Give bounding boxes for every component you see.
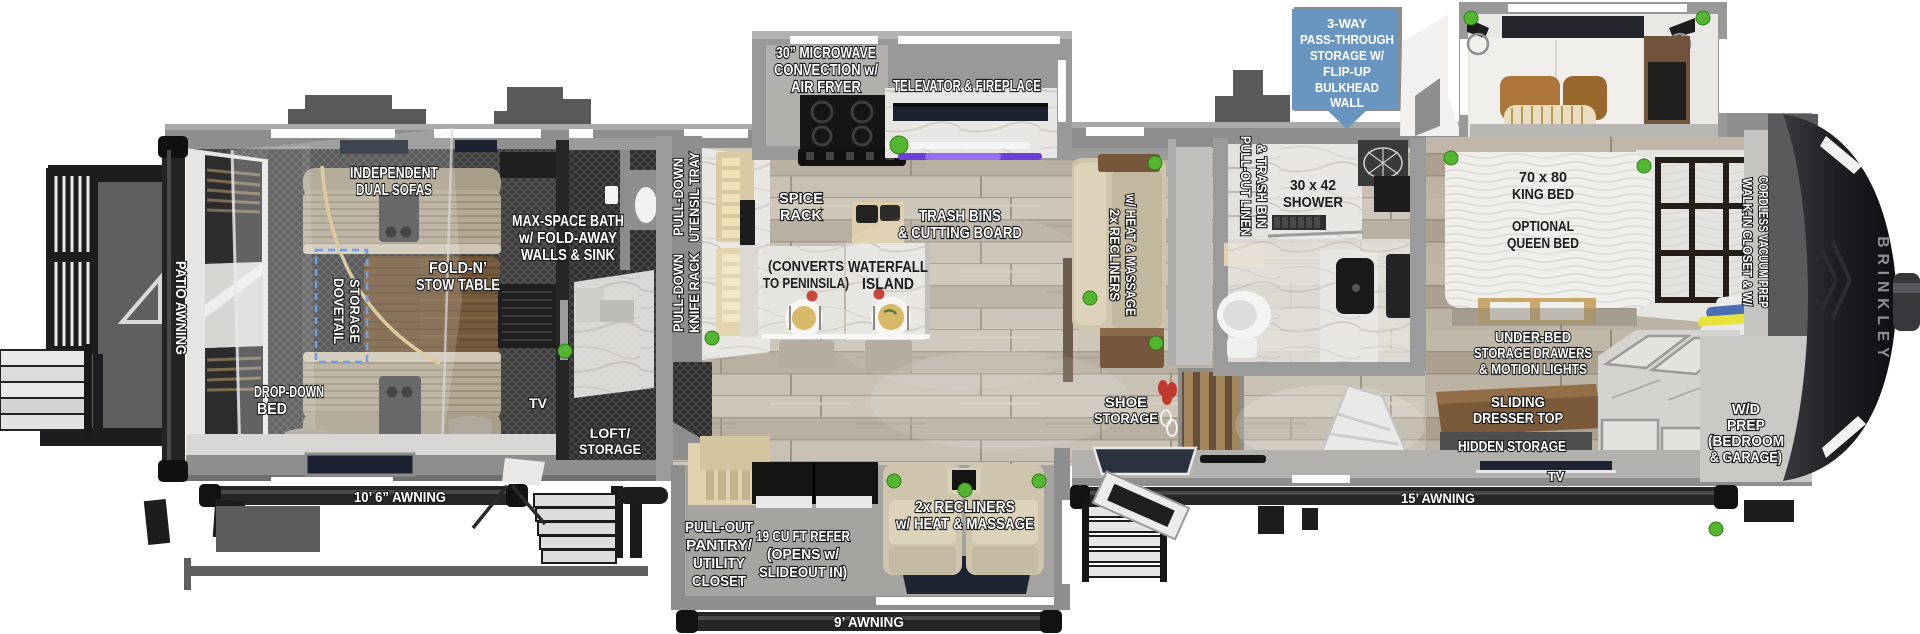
- svg-text:& GARAGE): & GARAGE): [1710, 450, 1782, 466]
- svg-text:STORAGE W/: STORAGE W/: [1310, 48, 1384, 63]
- svg-text:w/ HEAT & MASSAGE: w/ HEAT & MASSAGE: [895, 516, 1034, 533]
- svg-text:DROP-DOWN: DROP-DOWN: [254, 384, 324, 401]
- svg-text:PULL-DOWN: PULL-DOWN: [670, 158, 686, 236]
- svg-text:STORAGE: STORAGE: [579, 441, 641, 457]
- svg-text:QUEEN BED: QUEEN BED: [1507, 236, 1579, 252]
- svg-text:FOLD-N’: FOLD-N’: [429, 260, 487, 277]
- svg-text:SLIDING: SLIDING: [1491, 395, 1545, 411]
- svg-text:70 x 80: 70 x 80: [1519, 170, 1567, 186]
- svg-text:STORAGE: STORAGE: [1094, 410, 1158, 426]
- svg-text:HIDDEN STORAGE: HIDDEN STORAGE: [1458, 439, 1566, 455]
- svg-text:(CONVERTS: (CONVERTS: [768, 259, 844, 275]
- svg-text:INDEPENDENT: INDEPENDENT: [350, 165, 438, 182]
- svg-text:STOW TABLE: STOW TABLE: [416, 277, 500, 294]
- svg-text:9’ AWNING: 9’ AWNING: [834, 615, 904, 631]
- svg-text:PULL-OUT: PULL-OUT: [685, 519, 753, 536]
- svg-text:15’ AWNING: 15’ AWNING: [1401, 490, 1475, 506]
- svg-text:w/ FOLD-AWAY: w/ FOLD-AWAY: [518, 230, 617, 247]
- svg-text:WATERFALL: WATERFALL: [848, 259, 928, 276]
- svg-text:& TRASH BIN: & TRASH BIN: [1254, 144, 1269, 228]
- svg-text:CLOSET: CLOSET: [692, 573, 746, 590]
- svg-text:SHOWER: SHOWER: [1283, 195, 1343, 211]
- svg-text:BED: BED: [257, 401, 287, 418]
- svg-text:LOFT/: LOFT/: [590, 425, 631, 441]
- svg-text:SPICE: SPICE: [779, 190, 823, 207]
- svg-text:2x RECLINERS: 2x RECLINERS: [915, 499, 1015, 516]
- svg-text:(OPENS w/: (OPENS w/: [767, 546, 840, 563]
- svg-text:W/D: W/D: [1732, 402, 1760, 418]
- svg-text:& CUTTING BOARD: & CUTTING BOARD: [898, 225, 1022, 242]
- svg-text:w/ HEAT & MASSAGE: w/ HEAT & MASSAGE: [1123, 193, 1138, 316]
- svg-text:UTILITY: UTILITY: [693, 555, 745, 572]
- svg-text:STORAGE DRAWERS: STORAGE DRAWERS: [1474, 346, 1592, 362]
- svg-text:UTENSIL TRAY: UTENSIL TRAY: [686, 151, 702, 242]
- svg-text:RACK: RACK: [780, 207, 822, 224]
- svg-text:FLIP-UP: FLIP-UP: [1323, 64, 1371, 79]
- svg-text:KING BED: KING BED: [1512, 187, 1574, 203]
- svg-text:DOVETAIL: DOVETAIL: [331, 278, 347, 344]
- svg-text:& MOTION LIGHTS: & MOTION LIGHTS: [1479, 362, 1587, 378]
- svg-text:TO PENINSILA): TO PENINSILA): [763, 276, 849, 292]
- svg-text:TRASH BINS: TRASH BINS: [919, 208, 1001, 225]
- svg-text:30” MICROWAVE: 30” MICROWAVE: [776, 45, 876, 62]
- svg-text:BULKHEAD: BULKHEAD: [1315, 80, 1379, 95]
- svg-text:SLIDEOUT IN): SLIDEOUT IN): [759, 564, 847, 581]
- svg-text:TELEVATOR & FIREPLACE: TELEVATOR & FIREPLACE: [893, 78, 1041, 95]
- svg-text:UNDER-BED: UNDER-BED: [1495, 330, 1571, 346]
- svg-text:WALK-IN CLOSET & W/: WALK-IN CLOSET & W/: [1740, 178, 1755, 306]
- svg-text:BRINKLEY: BRINKLEY: [1874, 236, 1891, 363]
- svg-text:PASS-THROUGH: PASS-THROUGH: [1300, 32, 1394, 47]
- svg-text:KNIFE RACK: KNIFE RACK: [686, 253, 702, 333]
- svg-text:PULL-OUT LINEN: PULL-OUT LINEN: [1238, 136, 1253, 236]
- svg-text:AIR FRYER: AIR FRYER: [791, 79, 861, 96]
- svg-text:OPTIONAL: OPTIONAL: [1512, 219, 1574, 235]
- svg-text:PREP: PREP: [1727, 418, 1765, 434]
- svg-text:DUAL SOFAS: DUAL SOFAS: [356, 182, 432, 199]
- svg-text:(BEDROOM: (BEDROOM: [1708, 434, 1784, 450]
- svg-text:WALLS & SINK: WALLS & SINK: [521, 247, 616, 264]
- svg-text:DRESSER TOP: DRESSER TOP: [1473, 411, 1563, 427]
- svg-text:CORDLESS VACUUM PREP: CORDLESS VACUUM PREP: [1756, 176, 1771, 308]
- svg-text:PANTRY/: PANTRY/: [686, 537, 753, 554]
- svg-text:10’ 6” AWNING: 10’ 6” AWNING: [354, 490, 446, 506]
- svg-text:PATIO AWNING: PATIO AWNING: [172, 261, 188, 355]
- svg-text:19 CU FT REFER: 19 CU FT REFER: [756, 528, 850, 545]
- svg-text:30 x 42: 30 x 42: [1290, 178, 1336, 194]
- svg-text:2x RECLINERS: 2x RECLINERS: [1107, 209, 1122, 301]
- svg-text:SHOE: SHOE: [1105, 394, 1147, 410]
- svg-text:PULL-DOWN: PULL-DOWN: [670, 254, 686, 332]
- svg-text:TV: TV: [1548, 469, 1565, 484]
- svg-text:CONVECTION w/: CONVECTION w/: [774, 62, 879, 79]
- svg-text:MAX-SPACE BATH: MAX-SPACE BATH: [512, 213, 624, 230]
- svg-text:STORAGE: STORAGE: [347, 279, 363, 343]
- svg-text:TV: TV: [529, 395, 548, 411]
- svg-text:WALL: WALL: [1330, 95, 1364, 110]
- svg-text:ISLAND: ISLAND: [862, 276, 914, 293]
- svg-text:3-WAY: 3-WAY: [1327, 16, 1367, 31]
